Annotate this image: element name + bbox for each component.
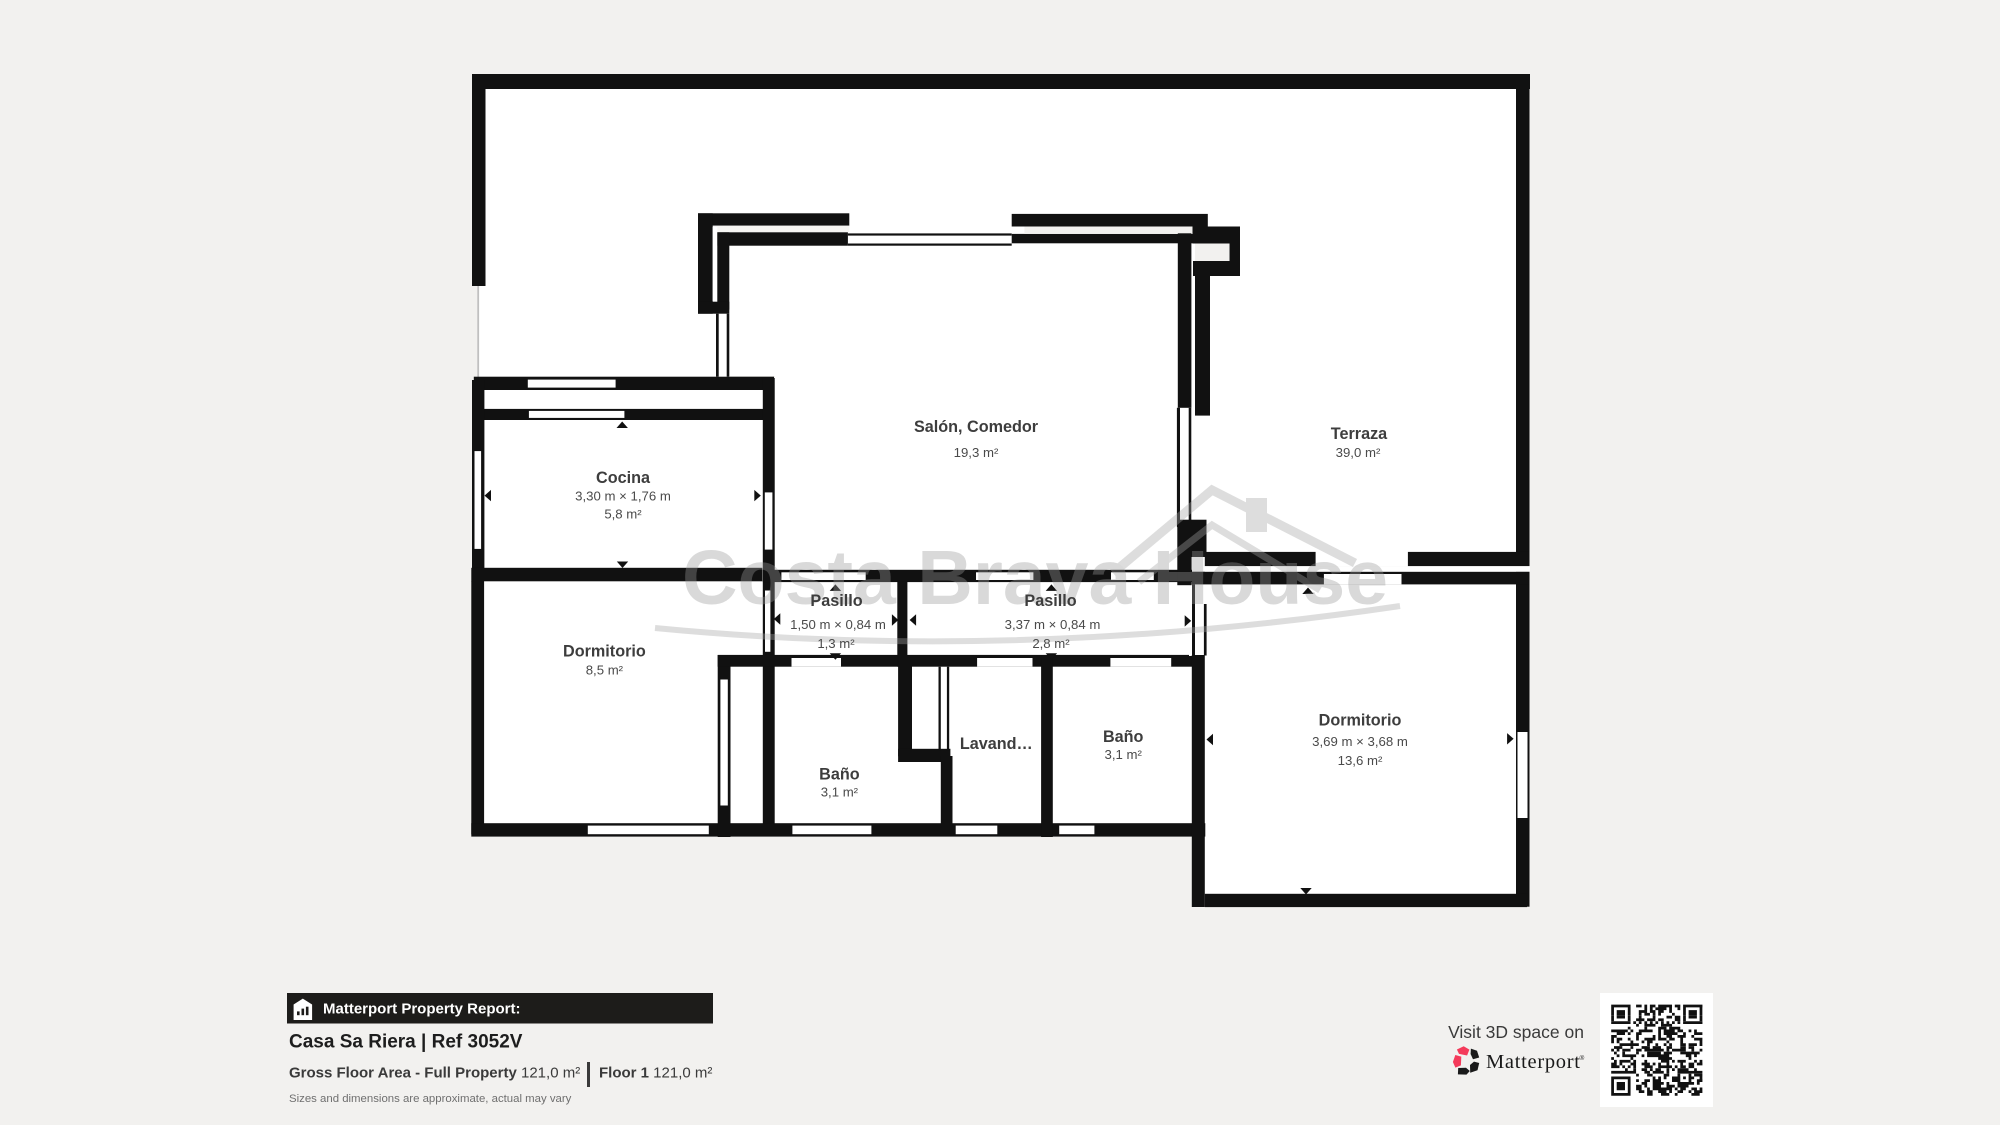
svg-text:19,3 m²: 19,3 m²: [954, 445, 999, 460]
svg-text:Lavand…: Lavand…: [960, 735, 1033, 753]
svg-text:Sizes and dimensions are appro: Sizes and dimensions are approximate, ac…: [289, 1093, 572, 1105]
svg-text:Pasillo: Pasillo: [1024, 592, 1076, 610]
svg-text:Dormitorio: Dormitorio: [1319, 712, 1402, 730]
svg-text:Baño: Baño: [819, 766, 860, 784]
svg-text:Baño: Baño: [1103, 728, 1144, 746]
svg-text:Cocina: Cocina: [596, 469, 651, 487]
svg-text:2,8 m²: 2,8 m²: [1032, 636, 1070, 651]
svg-text:Dormitorio: Dormitorio: [563, 643, 646, 661]
svg-text:Floor 1 121,0 m²: Floor 1 121,0 m²: [599, 1065, 712, 1082]
svg-text:Casa Sa Riera | Ref 3052V: Casa Sa Riera | Ref 3052V: [289, 1032, 523, 1053]
svg-text:Visit 3D space on: Visit 3D space on: [1448, 1022, 1584, 1042]
svg-text:3,69 m × 3,68 m: 3,69 m × 3,68 m: [1312, 734, 1408, 749]
svg-text:1,50 m × 0,84 m: 1,50 m × 0,84 m: [790, 617, 886, 632]
svg-text:13,6 m²: 13,6 m²: [1338, 753, 1383, 768]
svg-text:5,8 m²: 5,8 m²: [604, 507, 642, 522]
svg-text:®: ®: [1580, 1054, 1585, 1062]
svg-text:Matterport Property Report:: Matterport Property Report:: [323, 1001, 521, 1018]
svg-text:Gross Floor Area - Full Proper: Gross Floor Area - Full Property 121,0 m…: [289, 1065, 580, 1082]
svg-text:3,37 m × 0,84 m: 3,37 m × 0,84 m: [1005, 617, 1101, 632]
svg-text:Matterport: Matterport: [1486, 1051, 1581, 1073]
svg-text:Pasillo: Pasillo: [810, 592, 862, 610]
svg-text:3,30 m × 1,76 m: 3,30 m × 1,76 m: [575, 489, 671, 504]
svg-text:Terraza: Terraza: [1331, 425, 1388, 443]
svg-text:3,1 m²: 3,1 m²: [821, 785, 859, 800]
svg-text:39,0 m²: 39,0 m²: [1336, 445, 1381, 460]
svg-text:1,3 m²: 1,3 m²: [817, 636, 855, 651]
svg-text:Salón, Comedor: Salón, Comedor: [914, 418, 1039, 436]
svg-text:8,5 m²: 8,5 m²: [586, 663, 624, 678]
svg-text:3,1 m²: 3,1 m²: [1105, 747, 1143, 762]
